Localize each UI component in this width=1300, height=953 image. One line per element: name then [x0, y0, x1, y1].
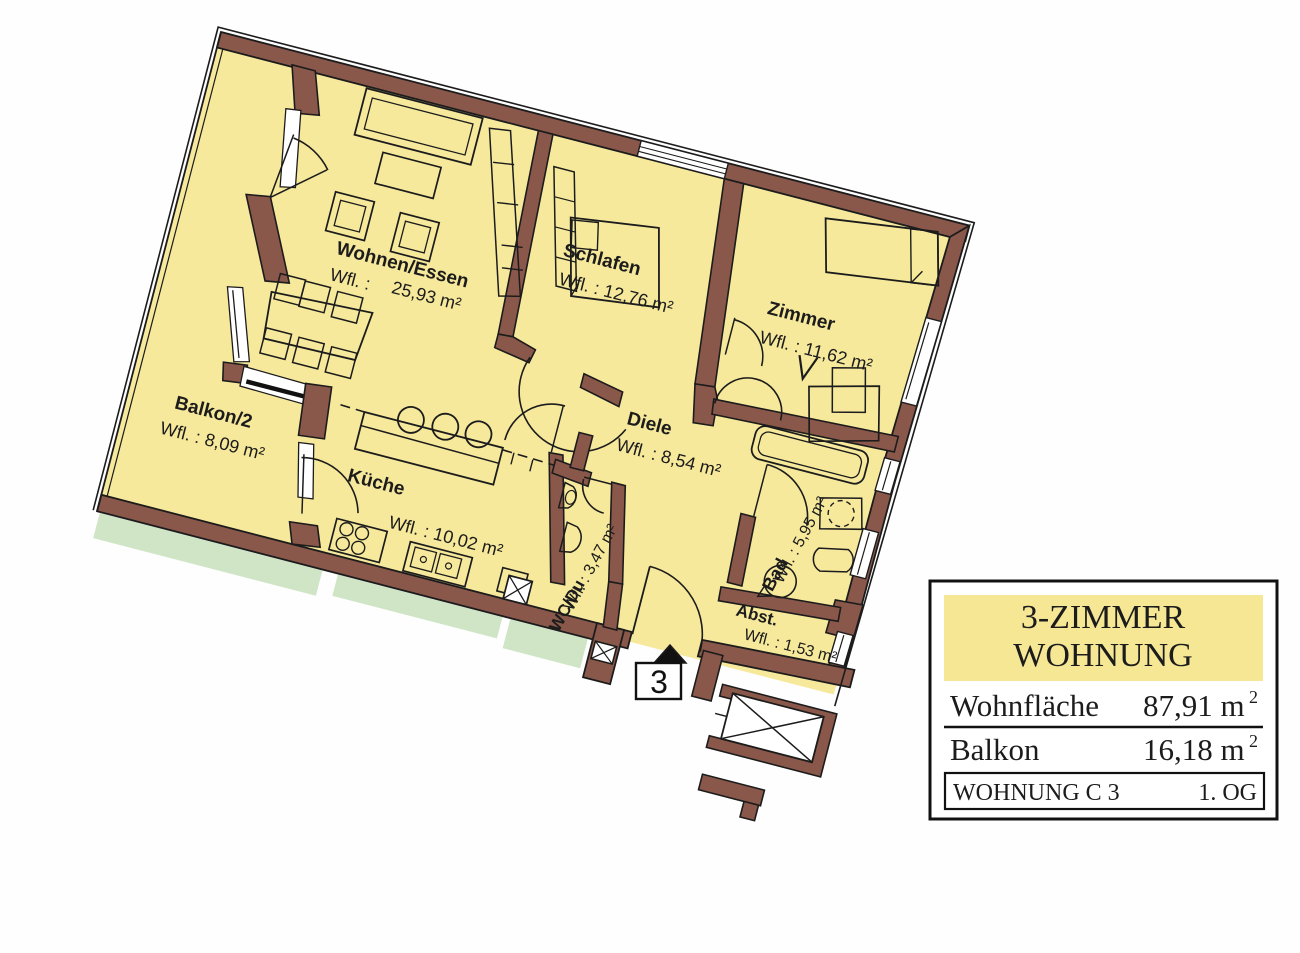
svg-text:16,18 m: 16,18 m — [1143, 732, 1245, 767]
svg-text:1. OG: 1. OG — [1198, 780, 1257, 806]
svg-text:3: 3 — [650, 664, 668, 700]
svg-text:3-ZIMMER: 3-ZIMMER — [1021, 599, 1186, 636]
svg-text:WOHNUNG: WOHNUNG — [1013, 637, 1192, 674]
svg-text:87,91 m: 87,91 m — [1143, 688, 1245, 723]
svg-text:2: 2 — [1249, 731, 1258, 751]
svg-text:2: 2 — [1249, 687, 1258, 707]
svg-text:Wohnfläche: Wohnfläche — [950, 688, 1099, 723]
svg-text:WOHNUNG C 3: WOHNUNG C 3 — [953, 780, 1120, 806]
svg-text:Balkon: Balkon — [950, 732, 1040, 767]
